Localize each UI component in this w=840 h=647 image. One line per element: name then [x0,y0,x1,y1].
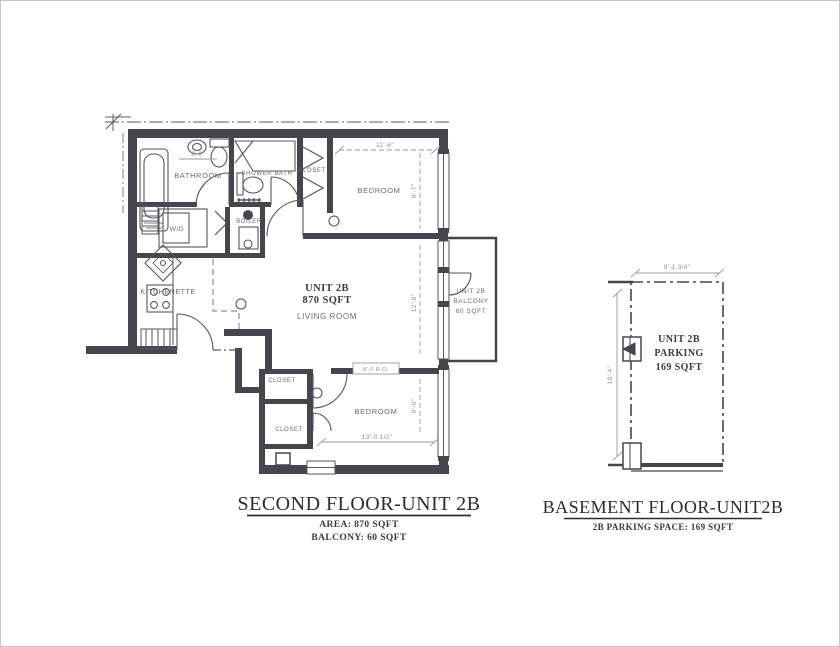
second-floor-balcony-subtitle: BALCONY: 60 SQFT [311,533,407,543]
label-unit-area: 870 SQFT [303,295,352,306]
floor-plan-drawing: 11'-6" 9'-7" 12'-9" 13'-0 1/2" 9'-0" 8'-… [1,1,840,647]
label-living-room: LIVING ROOM [297,312,357,321]
label-parking-3: 169 SQFT [656,362,703,373]
label-closet-top: CLOSET [298,168,326,174]
label-closet-b: CLOSET [275,427,303,433]
dim-parking-width: 9'-1 3/4" [664,264,691,271]
right-wall-windows [438,149,449,461]
label-wd: W/D [170,226,184,233]
parking-column-blocks [623,337,641,469]
label-boiler: BOILER [236,219,262,225]
dim-bathroom-width: 8'-0" [191,152,204,158]
label-bedroom-bottom: BEDROOM [355,407,398,416]
label-balcony-1: UNIT 2B [456,288,485,295]
basement-parking-plan: 9'-1 3/4" 18'-4" UNIT 2B PARKING 169 SQF… [607,264,724,471]
dim-bedroom1-width: 11'-6" [376,142,394,149]
label-bathroom: BATHROOM [174,171,222,180]
plan-titles: SECOND FLOOR-UNIT 2B AREA: 870 SQFT BALC… [238,493,784,543]
floor-plan-sheet: 11'-6" 9'-7" 12'-9" 13'-0 1/2" 9'-0" 8'-… [0,0,840,647]
centerline-top [105,114,449,131]
label-balcony-2: BALCONY [453,298,488,305]
parking-bottom-wall [631,463,723,467]
label-balcony-3: 60 SQFT [456,308,487,315]
slider-tag-text: 8'-0 R.O. [363,367,389,373]
label-unit-number: UNIT 2B [305,283,349,294]
wall-column-block [276,453,290,465]
second-floor-title: SECOND FLOOR-UNIT 2B [238,493,481,515]
second-floor-plan: 11'-6" 9'-7" 12'-9" 13'-0 1/2" 9'-0" 8'-… [86,114,496,474]
dim-bedroom1-depth: 9'-7" [411,183,418,198]
label-parking-2: PARKING [654,348,703,359]
dim-parking-depth: 18'-4" [607,365,614,384]
dim-bedroom2-depth: 9'-0" [411,398,418,413]
basement-title: BASEMENT FLOOR-UNIT2B [543,497,784,517]
label-shower-bath: SHOWER BATH [242,171,293,177]
label-kitchenette: KITCHENETTE [140,289,195,296]
second-floor-area-subtitle: AREA: 870 SQFT [319,520,399,530]
basement-subtitle: 2B PARKING SPACE: 169 SQFT [593,522,734,532]
dim-bedroom2-width: 13'-0 1/2" [362,434,393,441]
parking-boundary [631,282,723,464]
kitchen-dashed-boundary [213,259,239,331]
label-bedroom-top: BEDROOM [358,186,401,195]
label-parking-1: UNIT 2B [658,334,700,345]
label-closet-a: CLOSET [268,378,296,384]
dim-living-depth: 12'-9" [411,293,418,312]
